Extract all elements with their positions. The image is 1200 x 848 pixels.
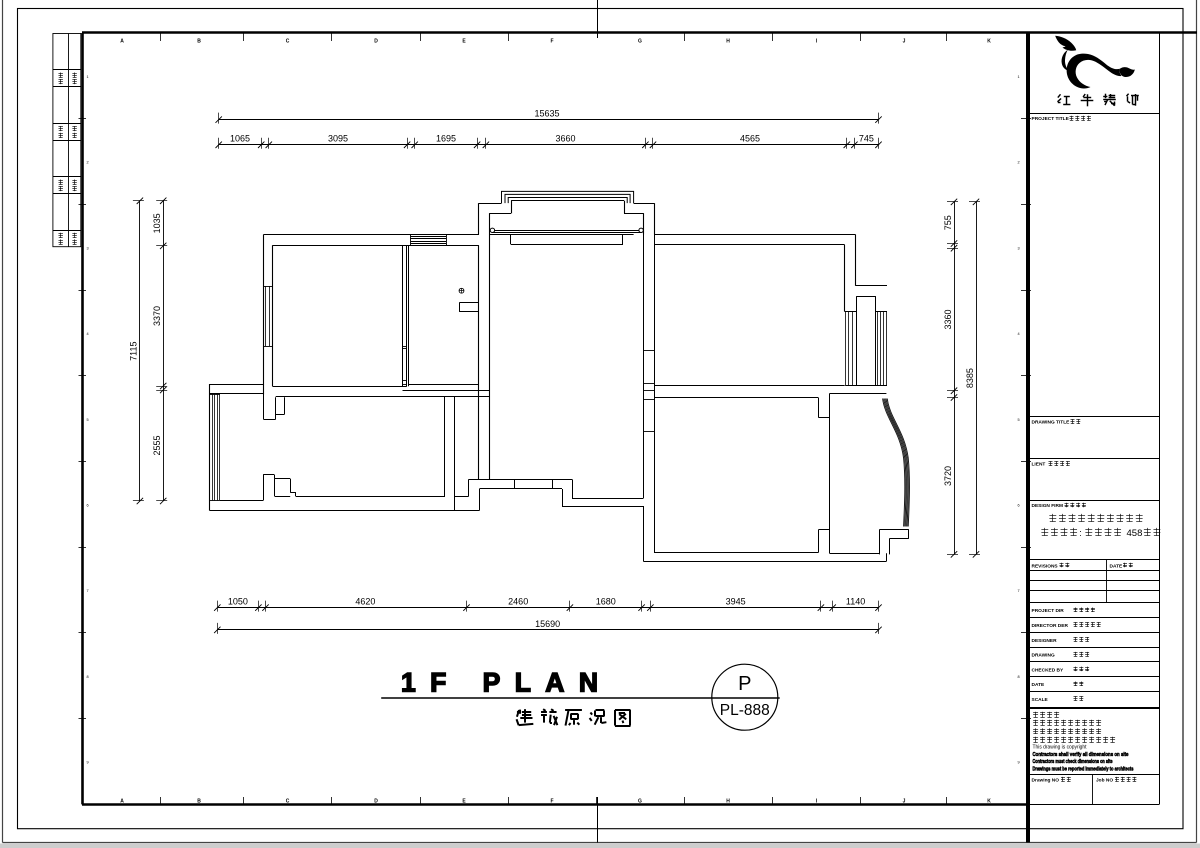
svg-text:15690: 15690: [535, 619, 560, 629]
svg-text:Drawing NO: Drawing NO: [1032, 778, 1060, 784]
svg-text:DATE: DATE: [1032, 682, 1046, 688]
svg-text:Contractors must check dimensi: Contractors must check dimensions on sit…: [1033, 759, 1113, 765]
svg-text:9: 9: [86, 761, 88, 765]
svg-text:K: K: [987, 39, 991, 45]
svg-text:This drawing is copyright: This drawing is copyright: [1033, 745, 1088, 751]
svg-text:1680: 1680: [596, 596, 616, 606]
svg-text:K: K: [987, 799, 991, 805]
svg-text:1050: 1050: [228, 596, 248, 606]
svg-text:2555: 2555: [152, 435, 162, 455]
svg-text:3095: 3095: [328, 134, 348, 144]
svg-text:D: D: [374, 39, 378, 45]
svg-text:G: G: [638, 39, 642, 45]
svg-text:SCALE: SCALE: [1032, 697, 1049, 703]
svg-text:3: 3: [86, 246, 88, 250]
svg-text:DRAWING TITLE: DRAWING TITLE: [1032, 420, 1071, 426]
svg-text:DESIGNER: DESIGNER: [1032, 638, 1058, 644]
svg-text:4: 4: [86, 332, 88, 336]
svg-text:7: 7: [1017, 589, 1019, 593]
svg-text:H: H: [726, 39, 730, 45]
svg-text:9: 9: [1017, 761, 1019, 765]
svg-text:F: F: [550, 39, 553, 45]
svg-text:Drawings must be reported imme: Drawings must be reported immediately to…: [1033, 767, 1134, 773]
svg-text:J: J: [903, 799, 906, 805]
svg-text:3370: 3370: [152, 306, 162, 326]
svg-text:755: 755: [943, 215, 953, 230]
svg-text::: :: [1079, 528, 1082, 538]
svg-text:3660: 3660: [555, 134, 575, 144]
svg-text:LIENT: LIENT: [1032, 462, 1046, 468]
svg-text:5: 5: [1017, 418, 1019, 422]
svg-text:1: 1: [1017, 75, 1019, 79]
svg-text:C: C: [286, 39, 290, 45]
svg-text:3: 3: [1017, 246, 1019, 250]
svg-text:Job NO: Job NO: [1096, 778, 1113, 784]
svg-text:G: G: [638, 799, 642, 805]
svg-text:1: 1: [86, 75, 88, 79]
svg-text:3360: 3360: [943, 309, 953, 329]
svg-text:J: J: [903, 39, 906, 45]
svg-text:7115: 7115: [129, 342, 139, 361]
svg-text:5: 5: [86, 418, 88, 422]
svg-text:3720: 3720: [943, 466, 953, 486]
svg-text:4: 4: [1017, 332, 1019, 336]
svg-text:4620: 4620: [355, 596, 375, 606]
svg-text:4565: 4565: [740, 134, 760, 144]
svg-text:F: F: [550, 799, 553, 805]
svg-text:C: C: [286, 799, 290, 805]
svg-text:1035: 1035: [152, 213, 162, 233]
svg-text:PROJECT TITLE: PROJECT TITLE: [1032, 116, 1070, 122]
svg-text:2: 2: [86, 161, 88, 165]
svg-text:8: 8: [86, 675, 88, 679]
svg-text:DATE: DATE: [1110, 564, 1124, 570]
svg-text:A: A: [120, 799, 124, 805]
svg-text:REVISIONS: REVISIONS: [1032, 564, 1059, 570]
svg-text:Contractors shall verify all d: Contractors shall verify all dimensions …: [1033, 752, 1129, 758]
svg-text:2460: 2460: [508, 596, 528, 606]
svg-text:PROJECT DIR: PROJECT DIR: [1032, 608, 1065, 614]
svg-text:3945: 3945: [726, 596, 746, 606]
svg-text:PL-888: PL-888: [720, 702, 770, 719]
svg-text:6: 6: [1017, 504, 1019, 508]
svg-text:745: 745: [859, 134, 874, 144]
svg-text:458: 458: [1127, 528, 1143, 539]
svg-text:2: 2: [1017, 161, 1019, 165]
svg-text:7: 7: [86, 589, 88, 593]
svg-text:D: D: [374, 799, 378, 805]
svg-text:15635: 15635: [534, 109, 559, 119]
svg-text:6: 6: [86, 504, 88, 508]
svg-text:1140: 1140: [846, 596, 865, 606]
svg-text:1695: 1695: [436, 134, 456, 144]
svg-text:1065: 1065: [230, 134, 250, 144]
svg-text:A: A: [120, 39, 124, 45]
svg-text:DESIGN FIRM: DESIGN FIRM: [1032, 503, 1063, 509]
svg-text:DRAWING: DRAWING: [1032, 653, 1055, 659]
svg-text:B: B: [197, 39, 201, 45]
svg-text:8385: 8385: [965, 368, 975, 388]
svg-text:DIRECTOR DER: DIRECTOR DER: [1032, 623, 1069, 629]
svg-text:H: H: [726, 799, 730, 805]
svg-text:B: B: [197, 799, 201, 805]
svg-text:P: P: [738, 673, 751, 695]
svg-text:CHECKED BY: CHECKED BY: [1032, 667, 1065, 673]
svg-text:8: 8: [1017, 675, 1019, 679]
